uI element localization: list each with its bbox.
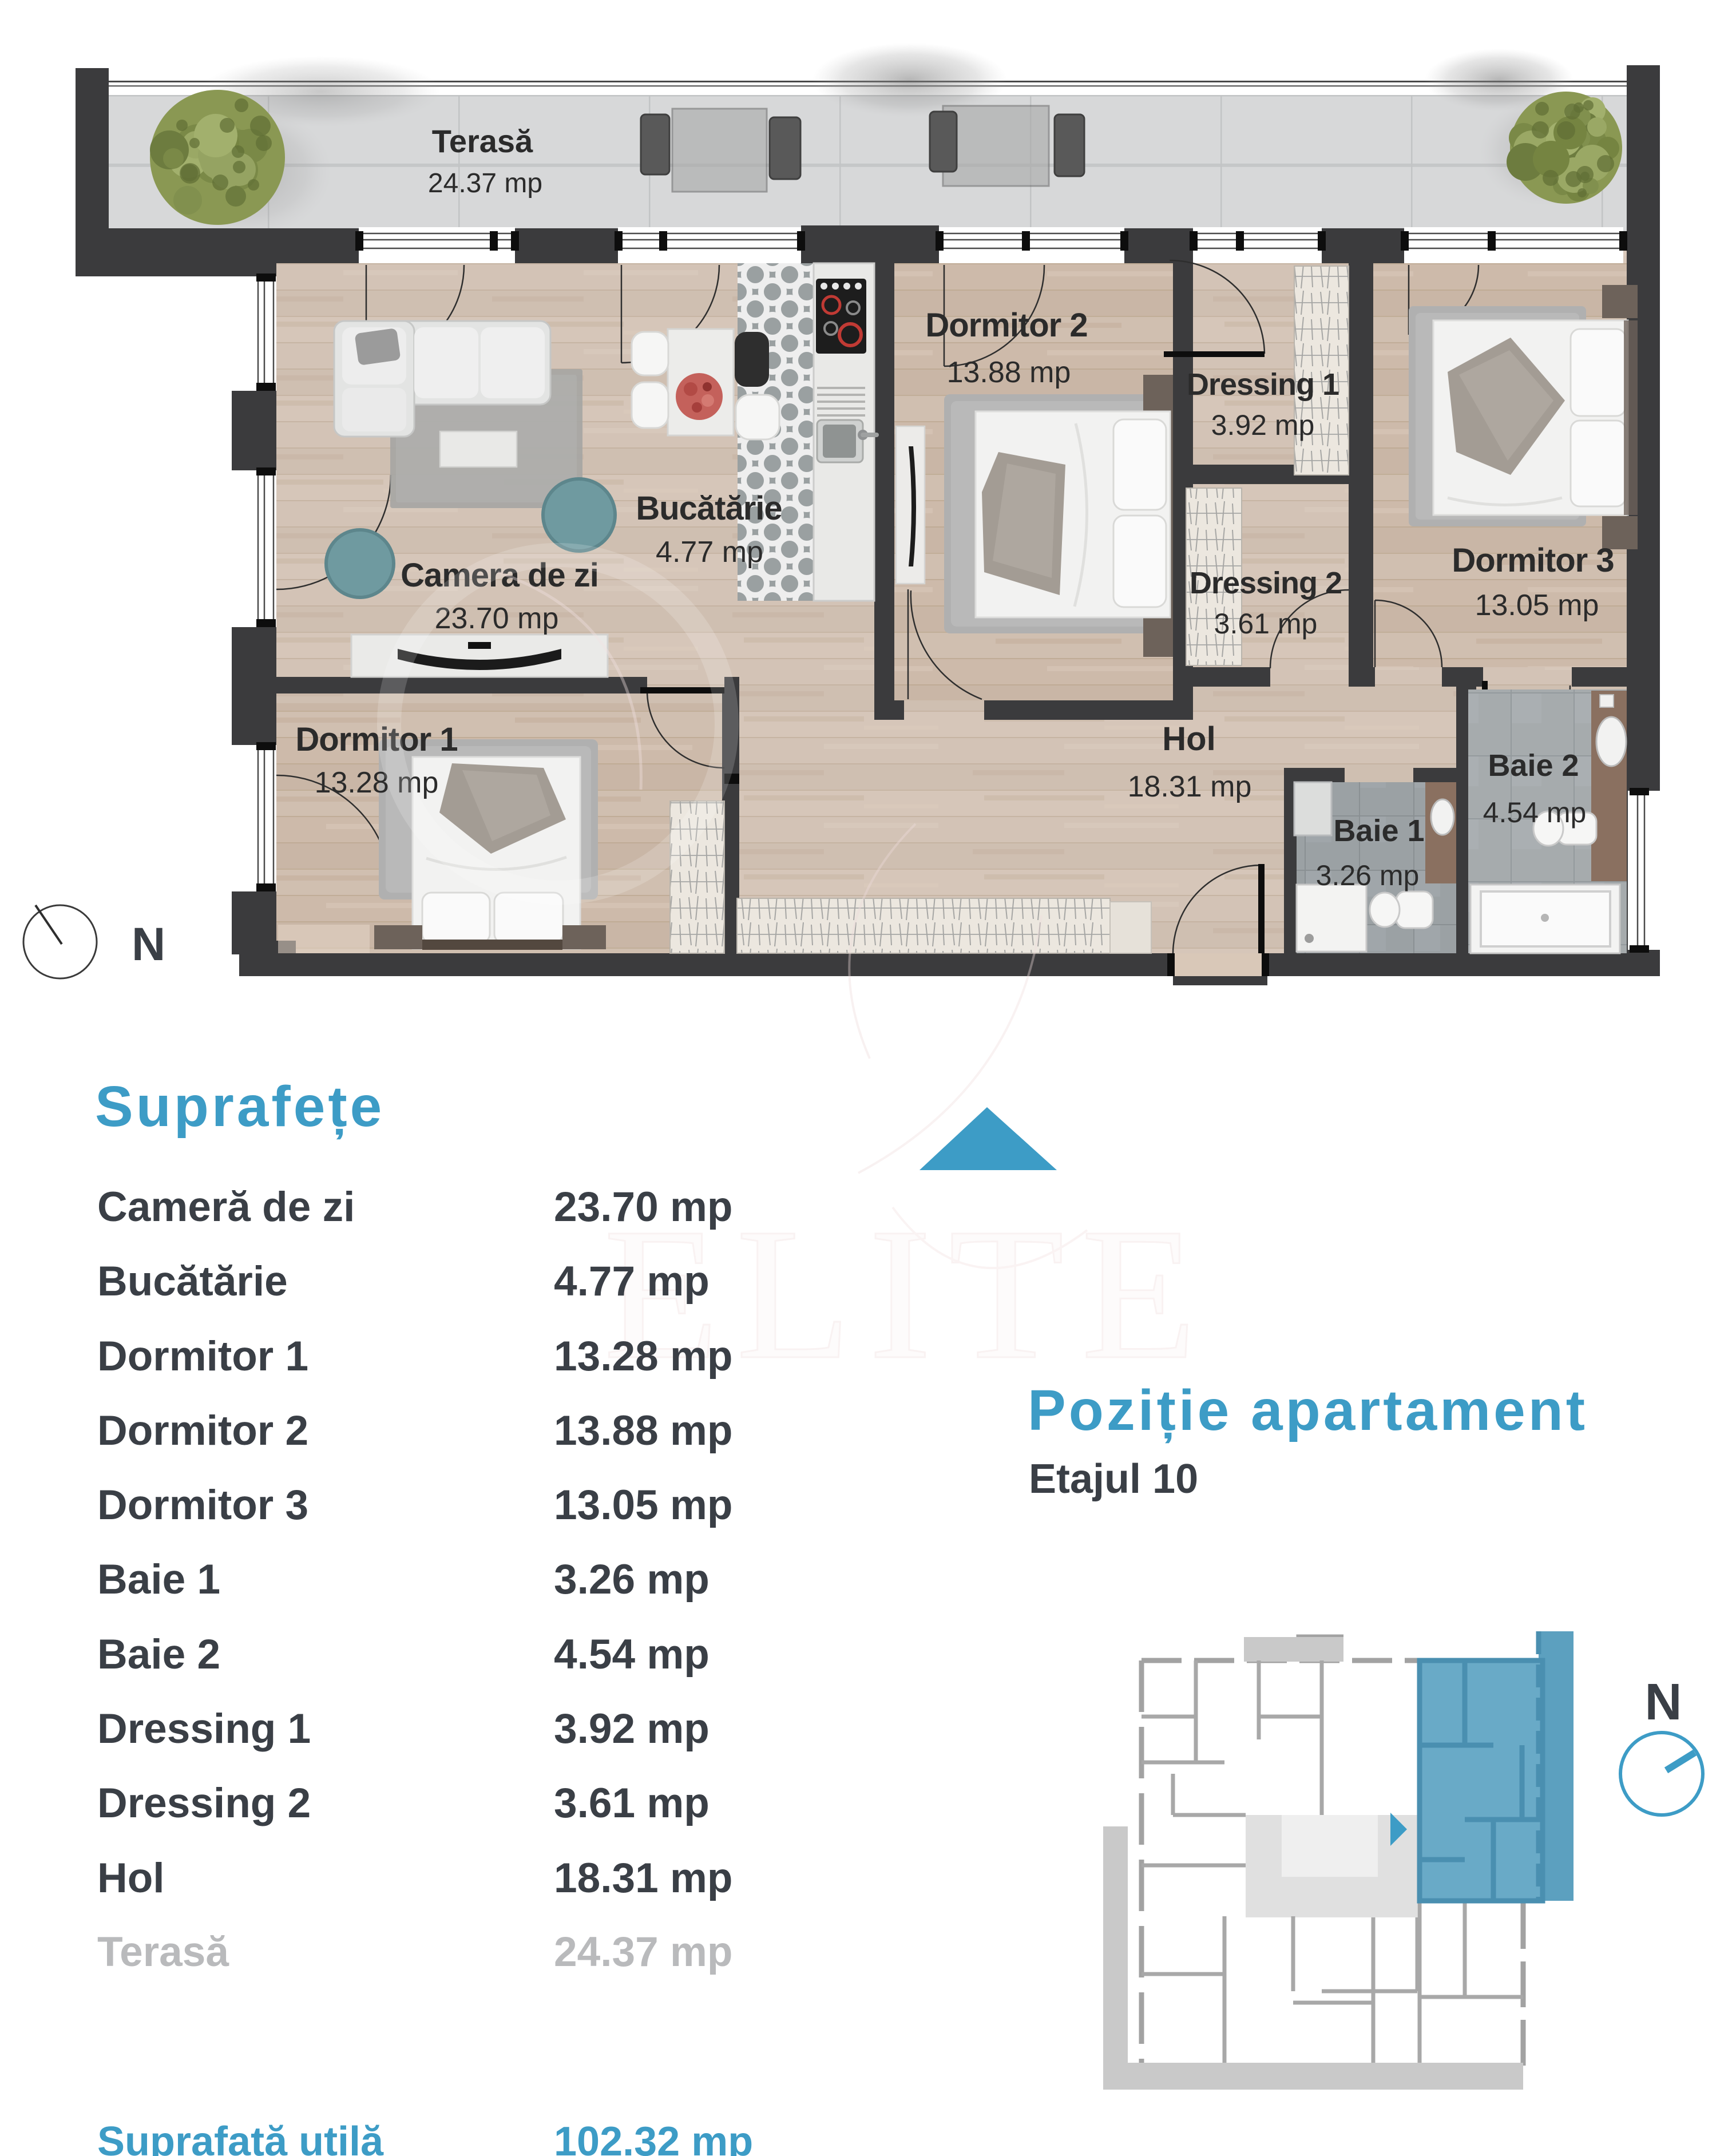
svg-text:N: N	[132, 918, 165, 970]
svg-text:Bucătărie: Bucătărie	[636, 490, 782, 527]
svg-text:13.05 mp: 13.05 mp	[1475, 589, 1599, 622]
svg-text:Dormitor 1: Dormitor 1	[295, 721, 457, 758]
svg-text:Terasă: Terasă	[432, 123, 533, 159]
svg-text:Dressing 1: Dressing 1	[1187, 367, 1339, 402]
svg-text:3.26 mp: 3.26 mp	[1316, 859, 1420, 891]
svg-text:13.88 mp: 13.88 mp	[947, 356, 1071, 389]
svg-text:Hol: Hol	[1162, 720, 1215, 758]
svg-text:13.28 mp: 13.28 mp	[315, 766, 439, 799]
svg-text:24.37 mp: 24.37 mp	[428, 168, 542, 199]
svg-text:N: N	[1645, 1674, 1682, 1731]
svg-text:Dormitor 2: Dormitor 2	[925, 307, 1087, 344]
svg-text:Dressing 2: Dressing 2	[1190, 566, 1342, 600]
svg-text:Dormitor 3: Dormitor 3	[1452, 542, 1614, 579]
svg-text:Baie 1: Baie 1	[1333, 814, 1424, 848]
svg-text:18.31 mp: 18.31 mp	[1128, 770, 1252, 803]
svg-text:Baie 2: Baie 2	[1488, 748, 1579, 783]
svg-text:3.92 mp: 3.92 mp	[1211, 409, 1315, 441]
svg-text:4.54 mp: 4.54 mp	[1483, 796, 1587, 829]
svg-text:4.77 mp: 4.77 mp	[656, 536, 763, 569]
svg-text:3.61 mp: 3.61 mp	[1214, 608, 1318, 640]
